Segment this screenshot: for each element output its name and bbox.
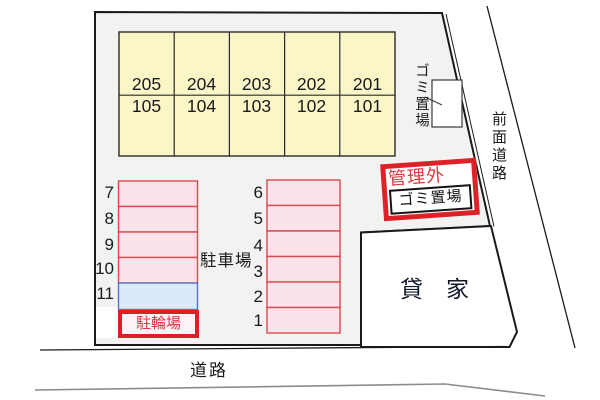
spot-number-7: 7 [92, 183, 114, 203]
entrance-notch [96, 307, 118, 338]
room-205: 205 [119, 74, 174, 94]
parking-spot-5 [267, 206, 340, 232]
site-plan: 205 204 203 202 201 105 104 103 102 101 … [0, 0, 600, 400]
bottom-road-upper-edge [40, 347, 505, 351]
room-104: 104 [174, 96, 229, 116]
bottom-road-label: 道路 [190, 356, 228, 381]
front-road-label: 前面道路 [488, 111, 509, 183]
room-105: 105 [119, 96, 174, 116]
room-201: 201 [340, 74, 395, 94]
garbage-area-label: ゴミ置場 [411, 63, 432, 129]
spot-number-9: 9 [92, 235, 114, 255]
bicycle-parking-label: 駐輪場 [136, 315, 181, 332]
room-204: 204 [174, 74, 229, 94]
parking-spot-7 [119, 181, 198, 207]
bicycle-parking-box: 駐輪場 [118, 310, 199, 338]
spot-number-1: 1 [241, 311, 263, 331]
parking-spot-4 [267, 231, 340, 257]
spot-number-5: 5 [241, 209, 263, 229]
apartment-building [119, 32, 395, 156]
parking-spot-1 [267, 308, 340, 334]
room-102: 102 [284, 96, 339, 116]
spot-number-6: 6 [241, 183, 263, 203]
spot-number-11: 11 [92, 284, 114, 304]
site-plan-shapes [0, 0, 600, 400]
room-101: 101 [340, 96, 395, 116]
parking-spot-3 [267, 257, 340, 283]
rental-house-label: 貸 家 [400, 270, 469, 304]
room-202: 202 [284, 74, 339, 94]
parking-spot-11 [119, 283, 198, 310]
parking-spot-6 [267, 180, 340, 206]
parking-spot-10 [119, 258, 198, 284]
parking-spot-8 [119, 207, 198, 233]
room-103: 103 [229, 96, 284, 116]
room-203: 203 [229, 74, 284, 94]
parking-spot-9 [119, 232, 198, 258]
parking-spot-2 [267, 282, 340, 308]
spot-number-10: 10 [92, 259, 114, 279]
spot-number-2: 2 [241, 287, 263, 307]
garbage-box [432, 80, 462, 127]
bottom-road-lower-edge [35, 384, 545, 396]
parking-area-label: 駐車場 [200, 247, 253, 271]
spot-number-8: 8 [92, 209, 114, 229]
unmanaged-garbage-box: 管理外 ゴミ置場 [380, 158, 480, 222]
